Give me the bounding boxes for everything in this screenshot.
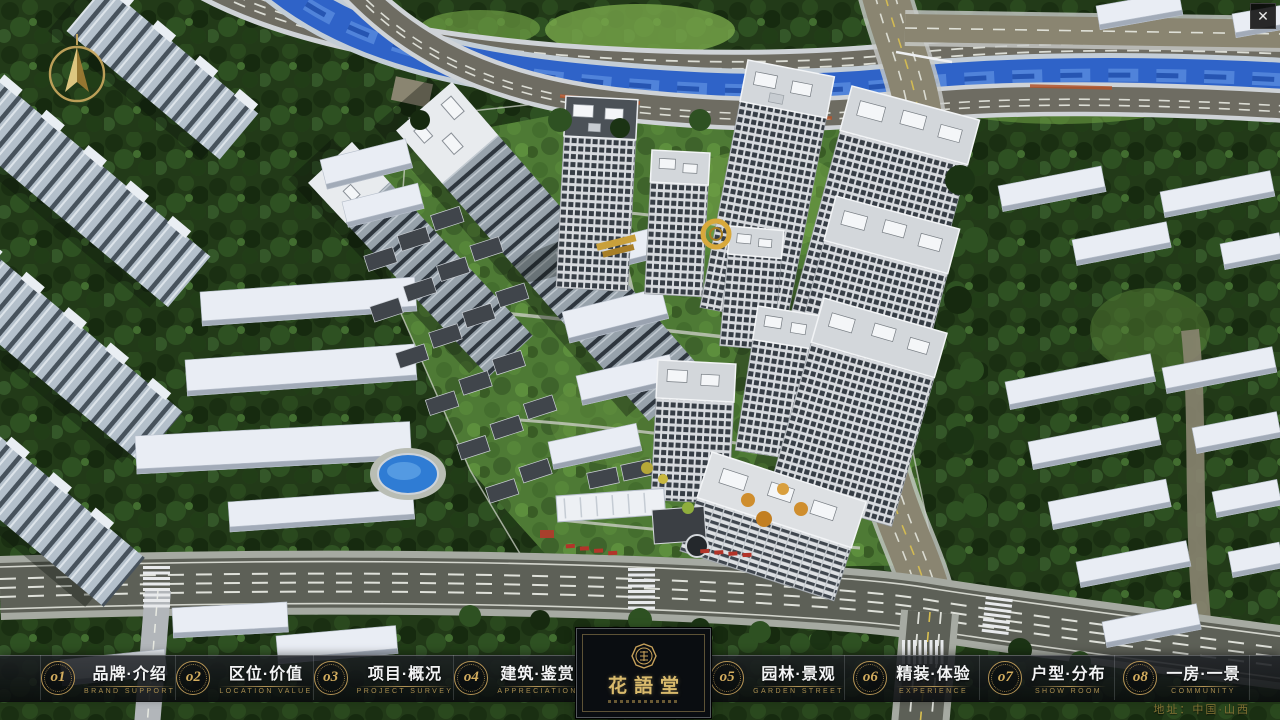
menu-label-8: 一房·一景 (1166, 660, 1240, 684)
sales-app-window: ✕ o1 品牌·介绍BRAND SUPPORT o2 区位·价值LOCATION… (0, 0, 1280, 720)
menu-label-5: 园林·景观 (761, 660, 835, 684)
menu-subtitle-4: APPRECIATION (497, 688, 577, 695)
menu-underline-1 (84, 686, 175, 687)
menu-subtitle-2: LOCATION VALUE (219, 688, 312, 695)
menu-badge-7: o7 (988, 661, 1022, 695)
menu-badge-2: o2 (176, 661, 210, 695)
compass-icon (42, 32, 112, 110)
close-icon: ✕ (1257, 9, 1269, 23)
menu-underline-2 (219, 686, 312, 687)
menu-badge-8: o8 (1123, 661, 1157, 695)
menu-number-1: o1 (51, 669, 66, 686)
menu-badge-1: o1 (41, 661, 75, 695)
menu-subtitle-7: SHOW ROOM (1035, 688, 1102, 695)
project-address: 地址：中国·山西 (1153, 701, 1250, 717)
menu-underline-6 (896, 686, 970, 687)
menu-label-6: 精装·体验 (896, 660, 970, 684)
brand-logo-title: 花語堂 (601, 671, 686, 698)
menu-number-4: o4 (464, 669, 479, 686)
menu-item-project-survey[interactable]: o3 项目·概况PROJECT SURVEY (313, 655, 454, 700)
menu-item-garden-landscape[interactable]: o5 园林·景观GARDEN STREET (709, 655, 844, 700)
menu-item-interior-experience[interactable]: o6 精装·体验EXPERIENCE (844, 655, 979, 700)
menu-label-7: 户型·分布 (1031, 660, 1105, 684)
menu-item-location-value[interactable]: o2 区位·价值LOCATION VALUE (175, 655, 312, 700)
brand-logo-tagline (608, 700, 680, 703)
brand-logo-frame: 花語堂 (582, 634, 705, 712)
menu-item-architecture[interactable]: o4 建筑·鉴赏APPRECIATION (453, 655, 578, 700)
aerial-masterplan-render (0, 0, 1280, 720)
menu-number-8: o8 (1133, 669, 1148, 686)
menu-number-3: o3 (323, 669, 338, 686)
menu-subtitle-6: EXPERIENCE (899, 688, 968, 695)
menu-label-4: 建筑·鉴赏 (500, 660, 574, 684)
menu-badge-4: o4 (454, 661, 488, 695)
menu-subtitle-8: COMMUNITY (1171, 688, 1236, 695)
menu-label-2: 区位·价值 (229, 660, 303, 684)
menu-underline-4 (497, 686, 577, 687)
menu-underline-7 (1031, 686, 1105, 687)
seal-icon (631, 643, 657, 669)
menu-badge-6: o6 (853, 661, 887, 695)
menu-subtitle-3: PROJECT SURVEY (357, 688, 454, 695)
menu-underline-5 (753, 686, 844, 687)
menu-number-7: o7 (998, 669, 1013, 686)
menu-group-left: o1 品牌·介绍BRAND SUPPORT o2 区位·价值LOCATION V… (0, 655, 576, 700)
menu-badge-5: o5 (710, 661, 744, 695)
menu-number-6: o6 (863, 669, 878, 686)
menu-item-unit-layout[interactable]: o7 户型·分布SHOW ROOM (979, 655, 1114, 700)
menu-item-room-view[interactable]: o8 一房·一景COMMUNITY (1114, 655, 1250, 700)
brand-logo-plaque: 花語堂 (576, 628, 711, 718)
menu-number-2: o2 (186, 669, 201, 686)
menu-subtitle-5: GARDEN STREET (753, 688, 844, 695)
menu-badge-3: o3 (314, 661, 348, 695)
menu-number-5: o5 (720, 669, 735, 686)
menu-label-3: 项目·概况 (368, 660, 442, 684)
menu-item-brand-intro[interactable]: o1 品牌·介绍BRAND SUPPORT (40, 655, 175, 700)
close-button[interactable]: ✕ (1250, 3, 1276, 29)
menu-subtitle-1: BRAND SUPPORT (84, 688, 175, 695)
menu-group-right: o5 园林·景观GARDEN STREET o6 精装·体验EXPERIENCE… (709, 655, 1280, 700)
menu-label-1: 品牌·介绍 (93, 660, 167, 684)
menu-underline-8 (1166, 686, 1240, 687)
menu-underline-3 (357, 686, 454, 687)
